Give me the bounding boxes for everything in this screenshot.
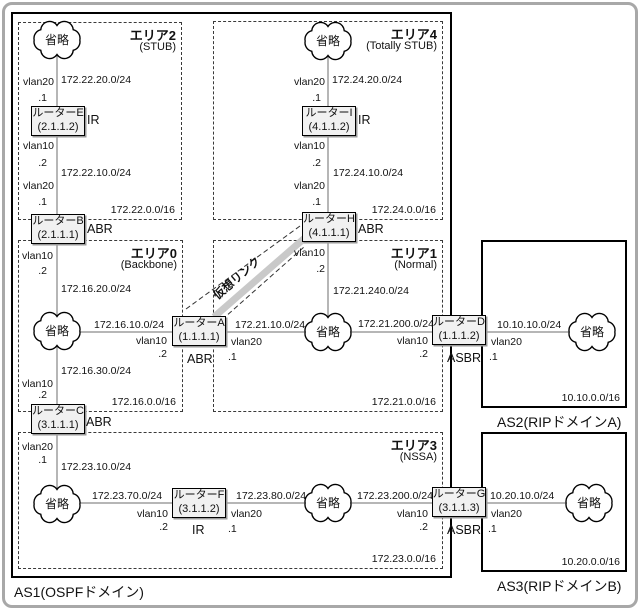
link-label: .1 — [489, 351, 498, 363]
cloud-label-c2: 省略 — [316, 32, 340, 49]
router-role-H: ABR — [358, 222, 384, 236]
link-label: .2 — [159, 521, 168, 533]
cloud-label-c6: 省略 — [316, 494, 340, 511]
router-role-F: IR — [192, 523, 205, 537]
router-id-F: (3.1.1.2) — [179, 503, 220, 517]
link-label: vlan10 — [136, 335, 167, 347]
link-label: 172.21.200.0/24 — [358, 318, 434, 330]
link-label: vlan20 — [22, 441, 53, 453]
link-label: .2 — [158, 348, 167, 360]
router-I: ルーターI(4.1.1.2) — [302, 106, 356, 136]
link-label: 172.23.200.0/24 — [357, 490, 433, 502]
link-label: .1 — [38, 196, 47, 208]
router-name-C: ルーターC — [32, 405, 84, 419]
region-label-as2: AS2(RIPドメインA) — [497, 412, 621, 432]
router-B: ルーターB(2.1.1.1) — [31, 214, 85, 244]
link-label: vlan20 — [231, 508, 262, 520]
link-label: vlan10 — [294, 247, 325, 259]
router-role-I: IR — [358, 113, 371, 127]
router-id-A: (1.1.1.1) — [179, 331, 220, 345]
link-label: vlan20 — [491, 336, 522, 348]
router-id-G: (3.1.1.3) — [439, 502, 480, 516]
router-role-C: ABR — [86, 415, 112, 429]
router-id-E: (2.1.1.2) — [38, 121, 79, 135]
link-label: vlan20 — [294, 76, 325, 88]
router-name-I: ルーターI — [305, 107, 352, 121]
link-label: 172.23.80.0/24 — [236, 490, 306, 502]
link-label: .1 — [312, 92, 321, 104]
router-D: ルーターD(1.1.1.2) — [432, 315, 486, 345]
router-id-C: (3.1.1.1) — [38, 419, 79, 433]
ospf-network-diagram: 仮想リンク エリア2(STUB)172.22.0.0/16エリア4(Totall… — [0, 0, 640, 610]
link-label: .2 — [312, 157, 321, 169]
link-label: 172.16.10.0/24 — [94, 319, 164, 331]
link-label: .1 — [38, 454, 47, 466]
router-name-H: ルーターH — [303, 213, 355, 227]
link-label: vlan10 — [397, 508, 428, 520]
link-label: .2 — [38, 265, 47, 277]
link-label: .1 — [38, 92, 47, 104]
router-C: ルーターC(3.1.1.1) — [31, 404, 85, 434]
region-network-area1: 172.21.0.0/16 — [213, 396, 436, 408]
link-label: .2 — [316, 263, 325, 275]
cloud-label-c1: 省略 — [45, 31, 69, 48]
router-id-I: (4.1.1.2) — [309, 121, 350, 135]
link-label: .2 — [38, 389, 47, 401]
link-label: 172.21.240.0/24 — [333, 285, 409, 297]
cloud-label-c8: 省略 — [577, 494, 601, 511]
link-label: 172.23.10.0/24 — [61, 461, 131, 473]
router-role-E: IR — [87, 113, 100, 127]
region-label-as3: AS3(RIPドメインB) — [497, 576, 621, 596]
region-network-area3: 172.23.0.0/16 — [18, 553, 436, 565]
router-role-B: ABR — [87, 222, 113, 236]
router-id-D: (1.1.1.2) — [439, 330, 480, 344]
link-label: vlan10 — [22, 250, 53, 262]
router-E: ルーターE(2.1.1.2) — [31, 106, 85, 136]
link-label: .2 — [419, 521, 428, 533]
link-label: 10.10.10.0/24 — [497, 319, 561, 331]
link-label: vlan20 — [294, 180, 325, 192]
router-F: ルーターF(3.1.1.2) — [172, 488, 226, 518]
link-label: .1 — [228, 351, 237, 363]
router-id-H: (4.1.1.1) — [309, 227, 350, 241]
region-label-as1: AS1(OSPFドメイン) — [14, 582, 144, 602]
link-label: vlan10 — [294, 140, 325, 152]
router-A: ルーターA(1.1.1.1) — [172, 316, 226, 346]
link-label: 172.23.70.0/24 — [92, 490, 162, 502]
router-name-F: ルーターF — [174, 489, 225, 503]
link-label: vlan20 — [231, 336, 262, 348]
link-label: 10.20.10.0/24 — [490, 490, 554, 502]
link-label: 172.21.10.0/24 — [235, 319, 305, 331]
link-label: vlan20 — [491, 508, 522, 520]
router-H: ルーターH(4.1.1.1) — [302, 212, 356, 242]
router-name-A: ルーターA — [173, 317, 224, 331]
cloud-label-c5: 省略 — [45, 495, 69, 512]
link-label: vlan10 — [23, 140, 54, 152]
router-name-G: ルーターG — [433, 488, 486, 502]
cloud-label-c7: 省略 — [580, 323, 604, 340]
region-network-as2: 10.10.0.0/16 — [481, 392, 620, 404]
link-label: vlan10 — [397, 335, 428, 347]
link-label: .2 — [38, 157, 47, 169]
link-label: vlan20 — [23, 180, 54, 192]
cloud-label-c4: 省略 — [316, 323, 340, 340]
link-label: 172.24.10.0/24 — [333, 167, 403, 179]
router-name-E: ルーターE — [32, 107, 83, 121]
router-role-D: ASBR — [447, 351, 481, 365]
link-label: 172.16.20.0/24 — [61, 283, 131, 295]
link-label: 172.24.20.0/24 — [332, 74, 402, 86]
router-role-A: ABR — [187, 352, 213, 366]
link-label: 172.22.10.0/24 — [61, 167, 131, 179]
link-label: .2 — [419, 348, 428, 360]
router-role-G: ASBR — [447, 523, 481, 537]
link-label: 172.16.30.0/24 — [61, 365, 131, 377]
cloud-label-c3: 省略 — [45, 322, 69, 339]
router-name-B: ルーターB — [32, 215, 83, 229]
link-label: vlan20 — [23, 76, 54, 88]
link-label: 172.22.20.0/24 — [61, 74, 131, 86]
router-G: ルーターG(3.1.1.3) — [432, 487, 486, 517]
region-network-as3: 10.20.0.0/16 — [481, 556, 620, 568]
link-label: .1 — [228, 523, 237, 535]
link-label: .1 — [488, 523, 497, 535]
router-id-B: (2.1.1.1) — [38, 229, 79, 243]
router-name-D: ルーターD — [433, 316, 485, 330]
link-label: .1 — [312, 196, 321, 208]
link-label: vlan10 — [137, 508, 168, 520]
